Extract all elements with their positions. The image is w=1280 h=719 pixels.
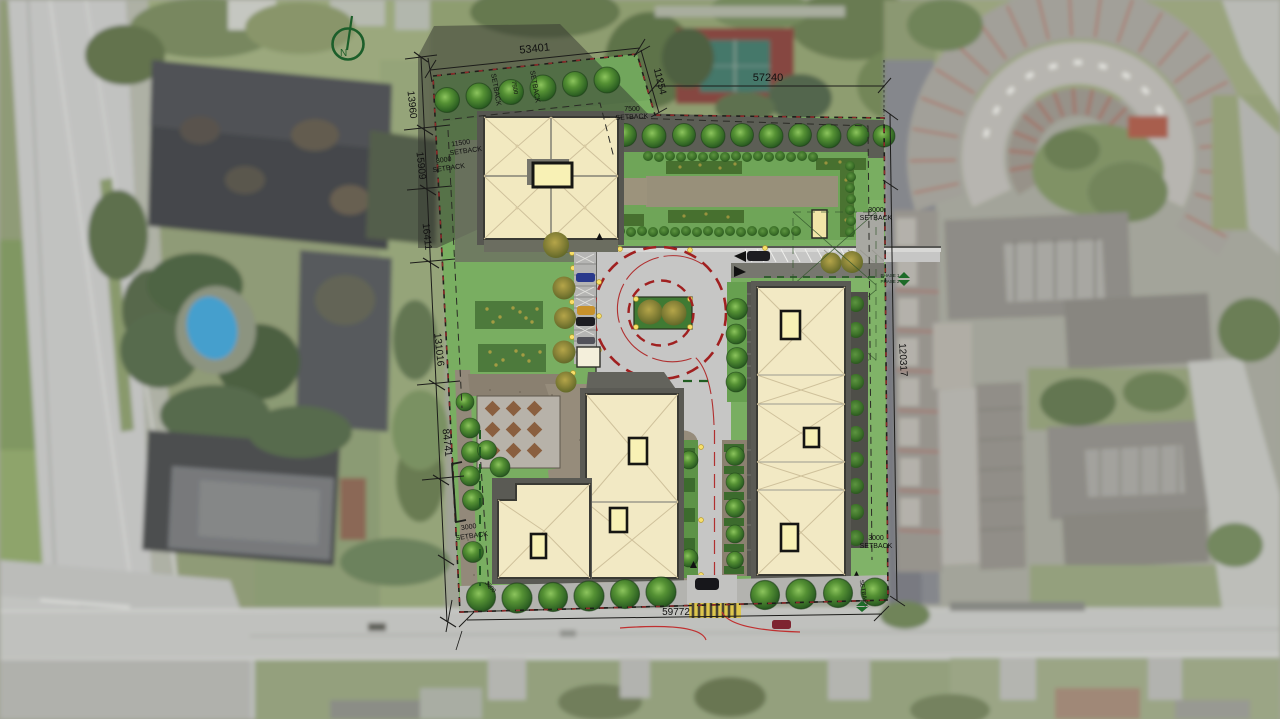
svg-text:120317: 120317 bbox=[896, 343, 909, 377]
svg-text:SETBACK: SETBACK bbox=[860, 215, 893, 222]
svg-text:SETBACK: SETBACK bbox=[860, 543, 893, 550]
svg-text:7500: 7500 bbox=[624, 106, 640, 113]
svg-text:PHASE 1: PHASE 1 bbox=[880, 273, 900, 278]
svg-text:57240: 57240 bbox=[753, 72, 784, 84]
svg-text:59772: 59772 bbox=[662, 607, 690, 618]
svg-text:3000: 3000 bbox=[868, 207, 884, 214]
svg-text:N: N bbox=[340, 48, 347, 59]
svg-text:PHASE 2: PHASE 2 bbox=[880, 279, 900, 284]
svg-text:3000: 3000 bbox=[868, 535, 884, 542]
